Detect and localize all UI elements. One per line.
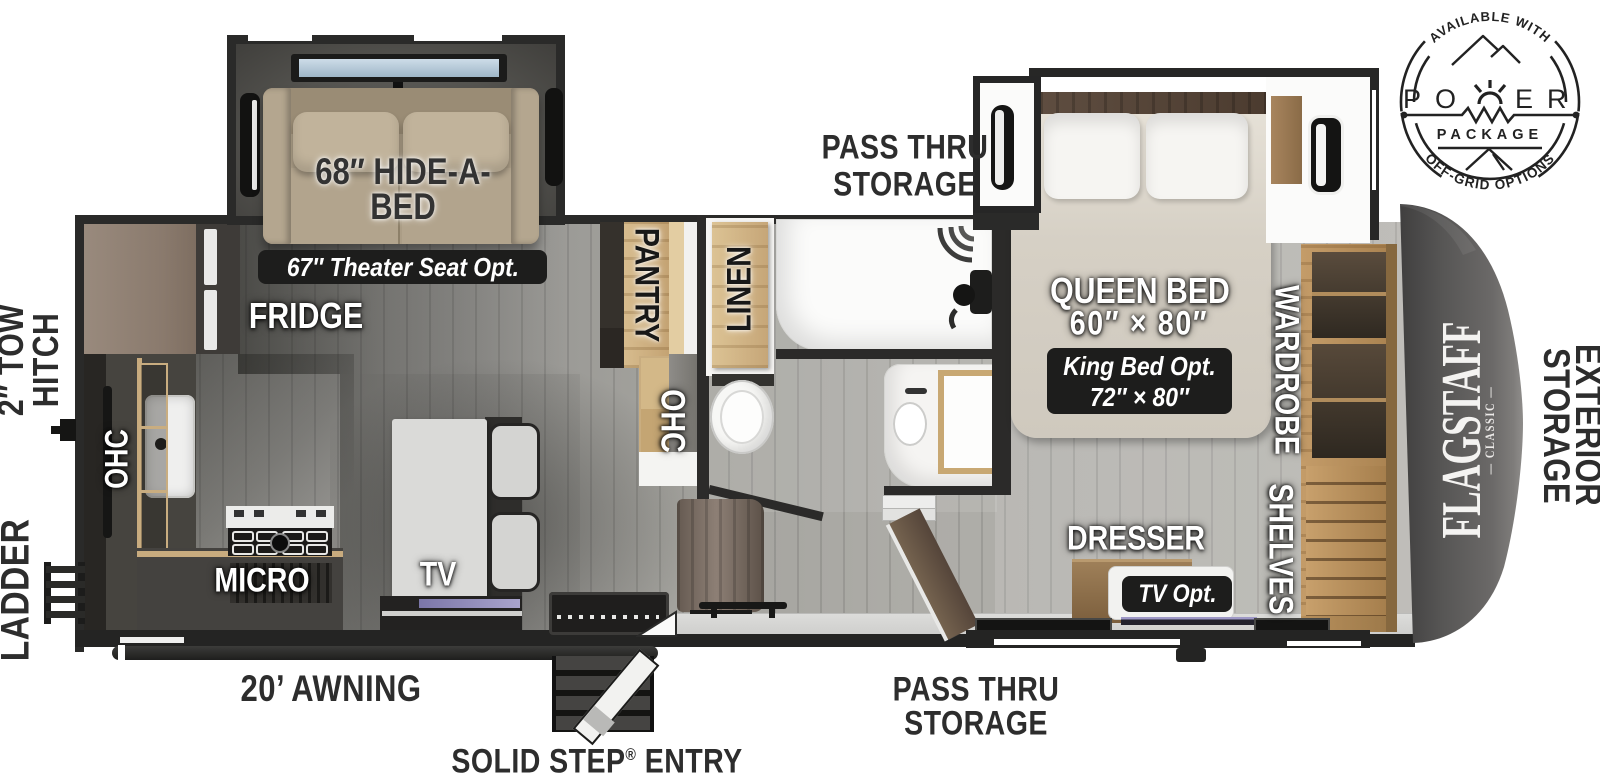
svg-text:PO: PO (1403, 84, 1470, 114)
svg-text:ER: ER (1515, 84, 1581, 114)
svg-text:OFF-GRID OPTIONS: OFF-GRID OPTIONS (1422, 150, 1558, 192)
svg-text:PACKAGE: PACKAGE (1437, 127, 1543, 143)
svg-text:AVAILABLE WITH: AVAILABLE WITH (1426, 9, 1554, 46)
